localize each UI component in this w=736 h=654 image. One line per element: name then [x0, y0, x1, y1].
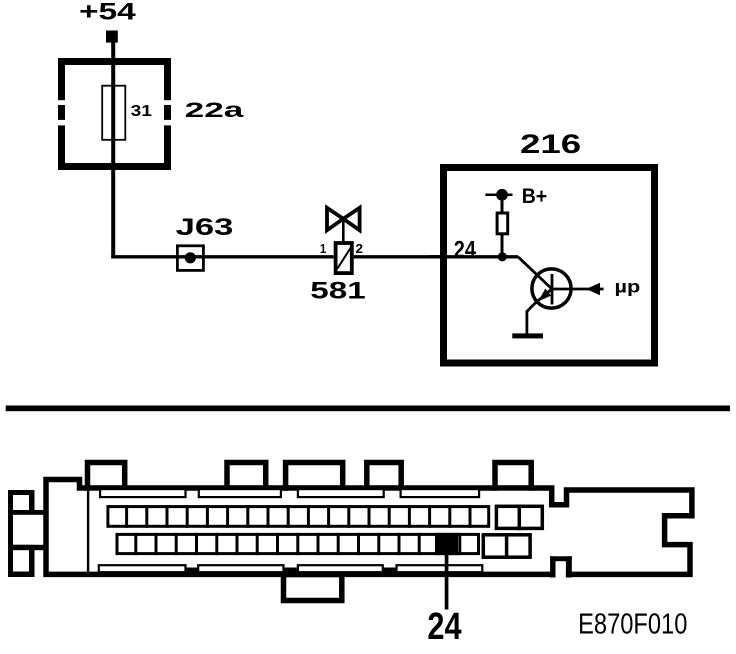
svg-text:E870F010: E870F010 — [578, 609, 687, 641]
svg-text:581: 581 — [310, 278, 365, 305]
svg-text:+54: +54 — [79, 0, 137, 26]
svg-text:J63: J63 — [176, 214, 234, 241]
svg-text:24: 24 — [427, 606, 461, 648]
svg-text:µp: µp — [615, 277, 641, 297]
svg-text:1: 1 — [320, 242, 326, 256]
svg-text:216: 216 — [520, 129, 581, 159]
svg-text:24: 24 — [454, 237, 476, 263]
svg-text:2: 2 — [356, 242, 364, 256]
svg-text:22a: 22a — [185, 98, 244, 122]
svg-text:31: 31 — [131, 103, 153, 120]
svg-text:B+: B+ — [522, 185, 548, 208]
